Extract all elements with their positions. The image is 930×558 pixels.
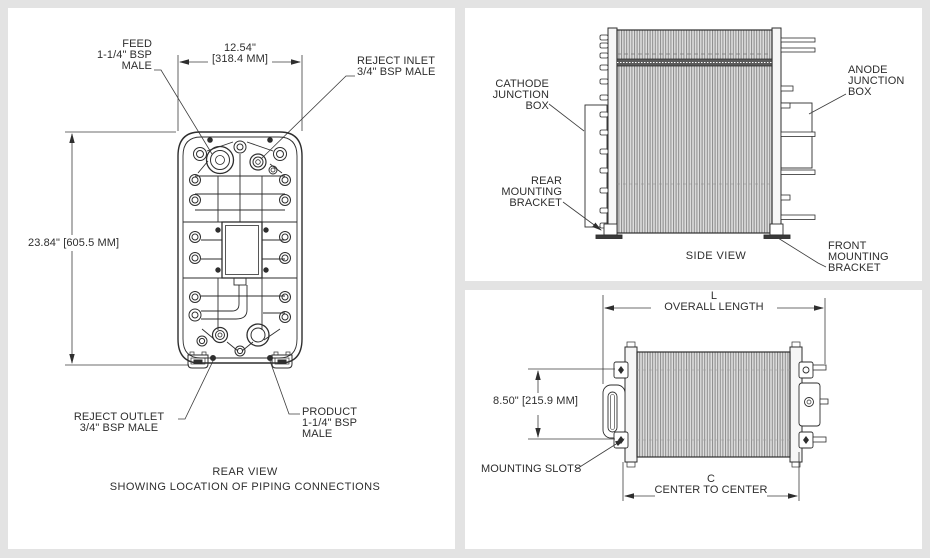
rear-mounting-bracket-label: REAR MOUNTING BRACKET (478, 176, 562, 209)
cathode-junction-box-label: CATHODE JUNCTION BOX (465, 79, 549, 112)
side-view-caption: SIDE VIEW (636, 251, 796, 262)
reject-outlet-label: REJECT OUTLET 3/4" BSP MALE (61, 412, 177, 434)
top-view-panel: L OVERALL LENGTH 8.50" [215.9 MM] MOUNTI… (465, 290, 922, 549)
left-mounting-bracket (603, 385, 625, 438)
height-dimension: 23.84" [605.5 MM] (26, 238, 121, 249)
side-view-panel: CATHODE JUNCTION BOX ANODE JUNCTION BOX … (465, 8, 922, 281)
rear-view-caption: REAR VIEW SHOWING LOCATION OF PIPING CON… (95, 465, 395, 495)
top-view-drawing (465, 290, 922, 549)
right-mounting-bracket (799, 383, 828, 426)
rear-plate (178, 132, 302, 368)
center-to-center-dimension: C CENTER TO CENTER (636, 474, 786, 496)
mounting-slots-label: MOUNTING SLOTS (481, 464, 581, 475)
product-port-label: PRODUCT 1-1/4" BSP MALE (302, 407, 357, 440)
front-mounting-bracket-label: FRONT MOUNTING BRACKET (828, 241, 889, 274)
width-dimension: 12.54" [318.4 MM] (170, 43, 310, 65)
overall-length-dimension: L OVERALL LENGTH (639, 291, 789, 313)
stack-body (637, 352, 790, 457)
feed-port-label: FEED 1-1/4" BSP MALE (70, 39, 152, 72)
rear-view-panel: FEED 1-1/4" BSP MALE 12.54" [318.4 MM] R… (8, 8, 455, 549)
stack-height-dimension: 8.50" [215.9 MM] (491, 396, 580, 407)
drawing-sheet: { "colors": { "page_bg": "#e3e3e3", "pan… (0, 0, 930, 558)
reject-inlet-label: REJECT INLET 3/4" BSP MALE (357, 56, 435, 78)
anode-junction-box-label: ANODE JUNCTION BOX (848, 65, 904, 98)
